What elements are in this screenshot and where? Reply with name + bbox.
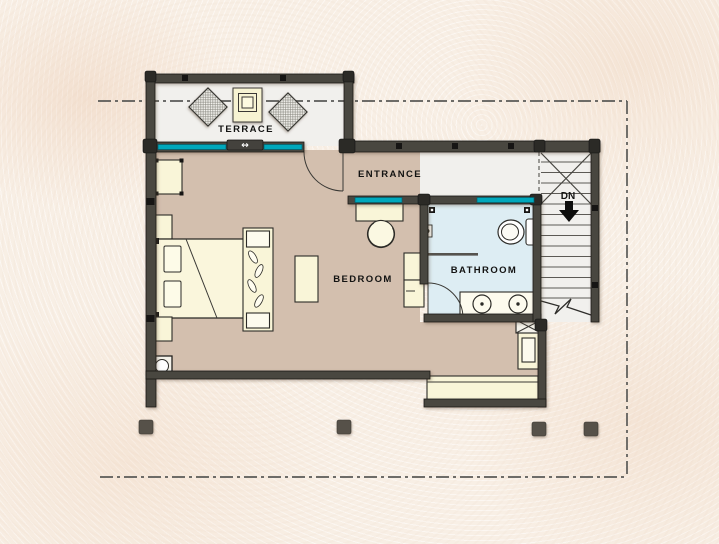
column-post: [532, 422, 546, 436]
bedroom-south-wall: [146, 371, 430, 379]
bedroom-label: BEDROOM: [333, 274, 392, 285]
floor-plan: DN: [0, 0, 719, 544]
column-post: [584, 422, 598, 436]
column-post: [337, 420, 351, 434]
terrace-window-right: [264, 145, 302, 150]
pillow-top: [164, 246, 181, 272]
cabinet-inner: [522, 338, 535, 362]
stairs-dn-label: DN: [561, 191, 575, 202]
bed: [153, 238, 250, 318]
bathroom-east-wall: [533, 196, 541, 322]
sliding-door: ↔: [227, 140, 263, 151]
entrance-north-wall: [340, 141, 600, 152]
extension-south-wall: [424, 399, 546, 407]
floor-plan-drawing: DN: [0, 0, 719, 544]
entrance-label: ENTRANCE: [358, 169, 422, 180]
terrace-north-wall: [146, 74, 354, 83]
terrace-window-left: [158, 145, 226, 150]
bed-bench: [243, 228, 273, 331]
bedroom-west-wall: [146, 142, 156, 407]
column-post: [139, 420, 153, 434]
desk: [356, 203, 403, 221]
entrance-window-right: [477, 198, 534, 203]
terrace-label: TERRACE: [218, 124, 274, 135]
window-seat: [427, 376, 538, 402]
site-columns: [139, 420, 598, 436]
stair-east-wall: [591, 141, 599, 322]
bathroom-label: BATHROOM: [451, 265, 517, 276]
bathroom-south-wall: [424, 314, 541, 322]
corner-chair: [155, 159, 184, 196]
entrance-window-left: [355, 198, 402, 203]
vanity: [460, 292, 537, 317]
bathroom-west-wall: [420, 196, 428, 284]
pillow-bottom: [164, 281, 181, 307]
shower-partition: [428, 253, 478, 256]
terrace-east-wall: [344, 74, 353, 150]
sliding-door-arrow-icon: ↔: [241, 141, 249, 151]
extension-east-wall: [538, 322, 546, 407]
ottoman: [295, 256, 318, 302]
terrace-table: [233, 88, 262, 122]
